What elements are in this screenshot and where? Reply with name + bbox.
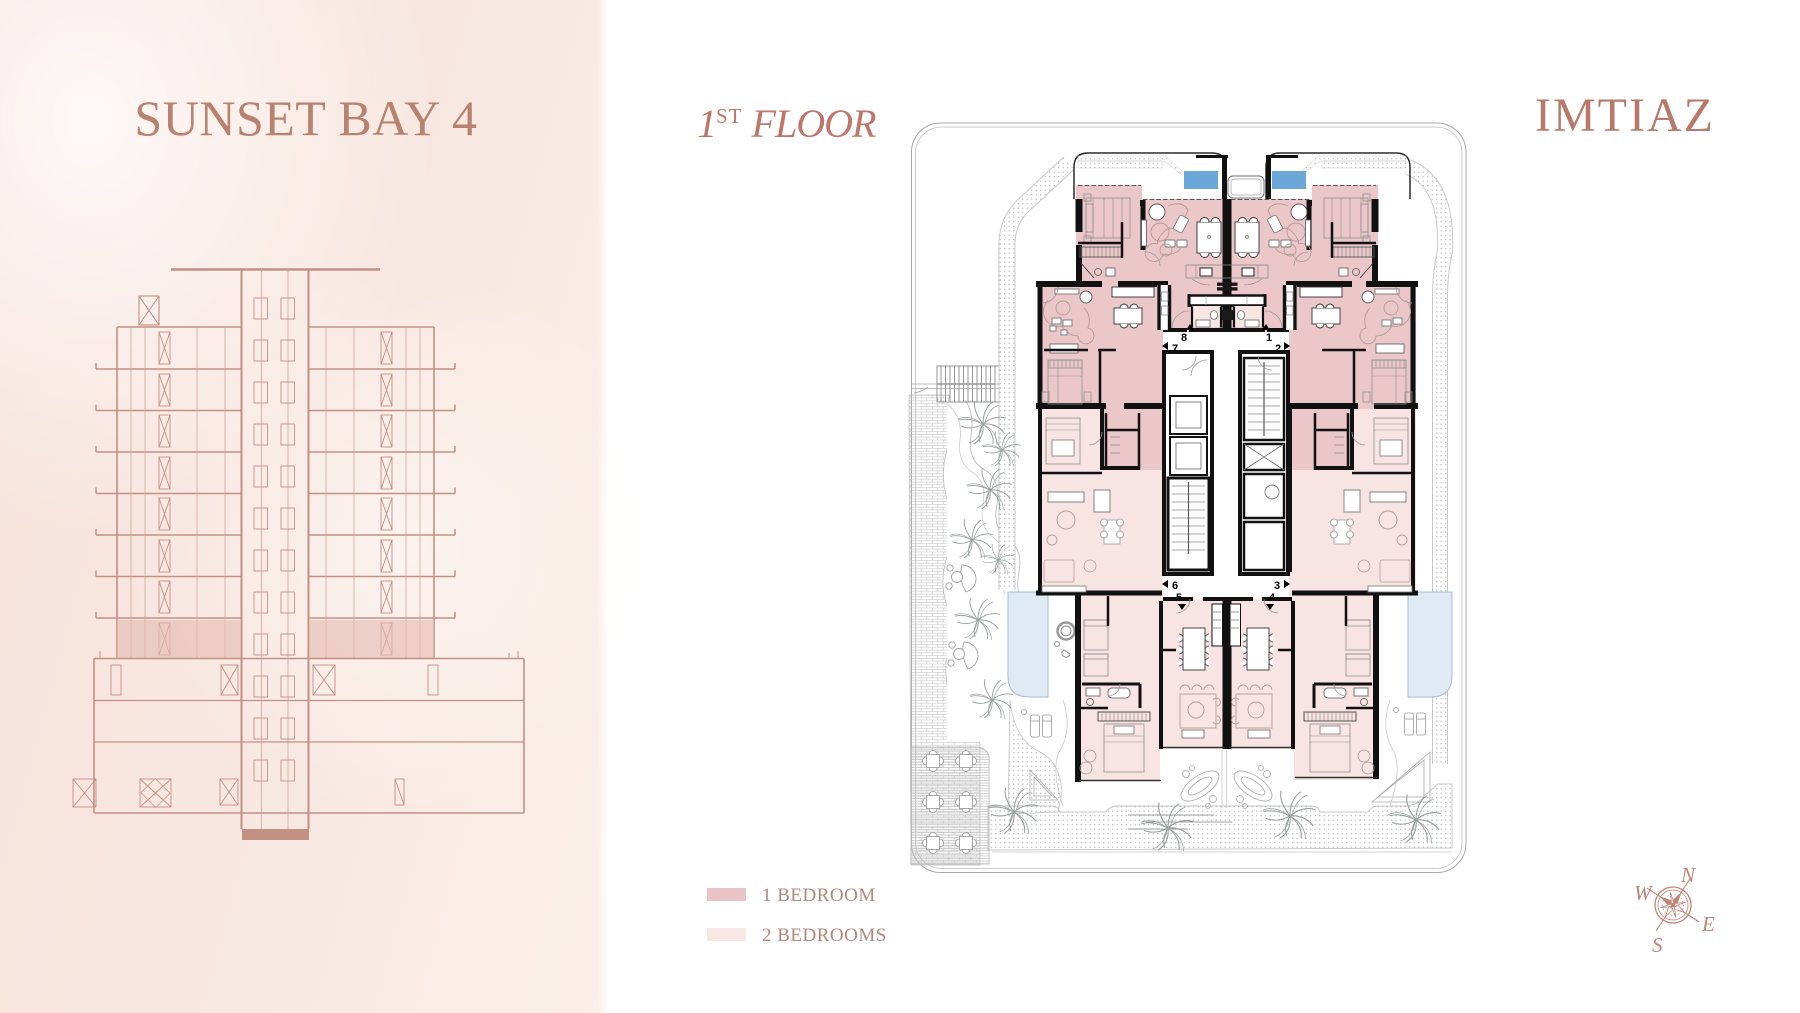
svg-text:3: 3 bbox=[1274, 580, 1280, 592]
svg-text:2: 2 bbox=[1275, 343, 1281, 355]
svg-text:W: W bbox=[1634, 881, 1654, 905]
svg-text:7: 7 bbox=[1172, 343, 1178, 355]
svg-text:S: S bbox=[1652, 933, 1663, 957]
svg-text:5: 5 bbox=[1176, 592, 1182, 604]
svg-text:8: 8 bbox=[1181, 332, 1187, 344]
svg-text:6: 6 bbox=[1172, 580, 1178, 592]
svg-text:N: N bbox=[1680, 863, 1696, 887]
svg-text:4: 4 bbox=[1269, 592, 1276, 604]
svg-text:1: 1 bbox=[1266, 332, 1272, 344]
svg-text:E: E bbox=[1701, 912, 1715, 936]
